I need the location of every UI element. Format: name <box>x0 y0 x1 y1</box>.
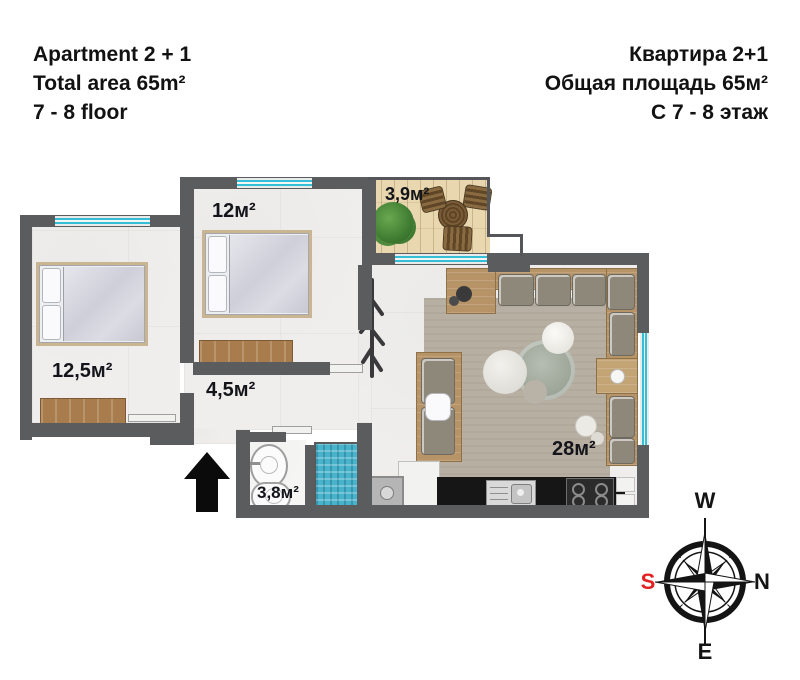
wall <box>20 215 32 440</box>
dresser-main <box>40 398 126 426</box>
room-label-hallway: 4,5м² <box>206 379 255 402</box>
entrance-arrow-icon <box>184 452 230 514</box>
sofa-cushion <box>609 438 635 464</box>
room-label-living: 28м² <box>552 438 596 461</box>
sofa-tray-table <box>596 358 638 394</box>
wall <box>236 505 649 518</box>
compass-east-label: E <box>698 639 713 660</box>
arrow-shaft <box>196 478 218 512</box>
total-area-ru: Общая площадь 65м² <box>545 69 768 98</box>
drainboard-line <box>490 487 508 488</box>
wall-pillar <box>488 253 530 272</box>
total-area-en: Total area 65m² <box>33 69 191 98</box>
balcony-railing <box>487 177 490 237</box>
floor-range-en: 7 - 8 floor <box>33 98 191 127</box>
compass-rose-icon: W N E S <box>638 490 772 660</box>
sofa-cushion <box>572 274 606 306</box>
fridge <box>398 461 440 509</box>
pillow <box>208 236 227 273</box>
title-english: Apartment 2 + 1 Total area 65m² 7 - 8 fl… <box>33 40 191 127</box>
pouf-white <box>483 350 527 394</box>
compass-north-label: N <box>754 569 770 594</box>
blanket <box>229 235 308 313</box>
bed-second <box>202 230 312 318</box>
arrow-head <box>184 452 230 479</box>
pouf-small <box>542 322 574 354</box>
wall <box>358 265 372 330</box>
floor-range-ru: С 7 - 8 этаж <box>545 98 768 127</box>
compass-west-label: W <box>695 490 716 513</box>
plant-icon <box>372 202 414 244</box>
apartment-type-ru: Квартира 2+1 <box>545 40 768 69</box>
faucet-icon <box>250 462 260 465</box>
bed-main <box>36 262 148 346</box>
wall <box>236 432 286 442</box>
shower <box>314 442 361 510</box>
pillow <box>42 268 61 303</box>
balcony-railing <box>487 234 523 237</box>
wall <box>180 177 194 363</box>
sofa-cushion <box>535 274 571 306</box>
kitchen-sink <box>486 480 536 507</box>
wall <box>357 423 372 515</box>
stool <box>523 380 547 404</box>
sofa-cushion <box>609 396 635 438</box>
window <box>237 178 312 188</box>
balcony-railing <box>368 177 490 180</box>
compass-south-label: S <box>641 569 656 594</box>
decor-icon <box>449 296 459 306</box>
washer-door-icon <box>380 486 394 500</box>
window <box>640 333 649 445</box>
sofa-corner-cushion <box>607 274 635 310</box>
wall <box>236 430 250 515</box>
wall-shower-partition <box>305 445 314 506</box>
window-balcony-door <box>395 254 487 264</box>
throw-pillow <box>425 393 451 421</box>
door-leaf-bedroom-main <box>128 414 176 422</box>
wall <box>150 429 184 445</box>
wall <box>637 253 649 333</box>
window <box>55 216 150 226</box>
wall <box>362 177 376 265</box>
sofa-cushion <box>609 312 635 356</box>
floor-plan-page: Apartment 2 + 1 Total area 65m² 7 - 8 fl… <box>0 0 800 680</box>
compass-main-points <box>655 532 755 632</box>
title-russian: Квартира 2+1 Общая площадь 65м² С 7 - 8 … <box>545 40 768 127</box>
blanket <box>63 267 144 341</box>
sofa-cushion <box>498 274 534 306</box>
drainboard-line <box>490 499 508 500</box>
apartment-type-en: Apartment 2 + 1 <box>33 40 191 69</box>
armchair <box>416 352 462 462</box>
drainboard-line <box>490 493 508 494</box>
pillow <box>208 275 227 312</box>
pillow <box>42 305 61 340</box>
balcony-railing <box>520 234 523 256</box>
switch-panel <box>616 477 635 492</box>
sink-bowl <box>260 456 278 474</box>
faucet-icon <box>517 489 524 496</box>
room-label-bedroom-second: 12м² <box>212 200 256 223</box>
room-label-bathroom: 3,8м² <box>257 483 299 503</box>
tray-icon <box>610 369 625 384</box>
room-label-balcony: 3,9м² <box>385 184 429 205</box>
balcony-chair <box>442 225 472 251</box>
wall <box>193 362 330 375</box>
room-label-bedroom-main: 12,5м² <box>52 360 112 383</box>
